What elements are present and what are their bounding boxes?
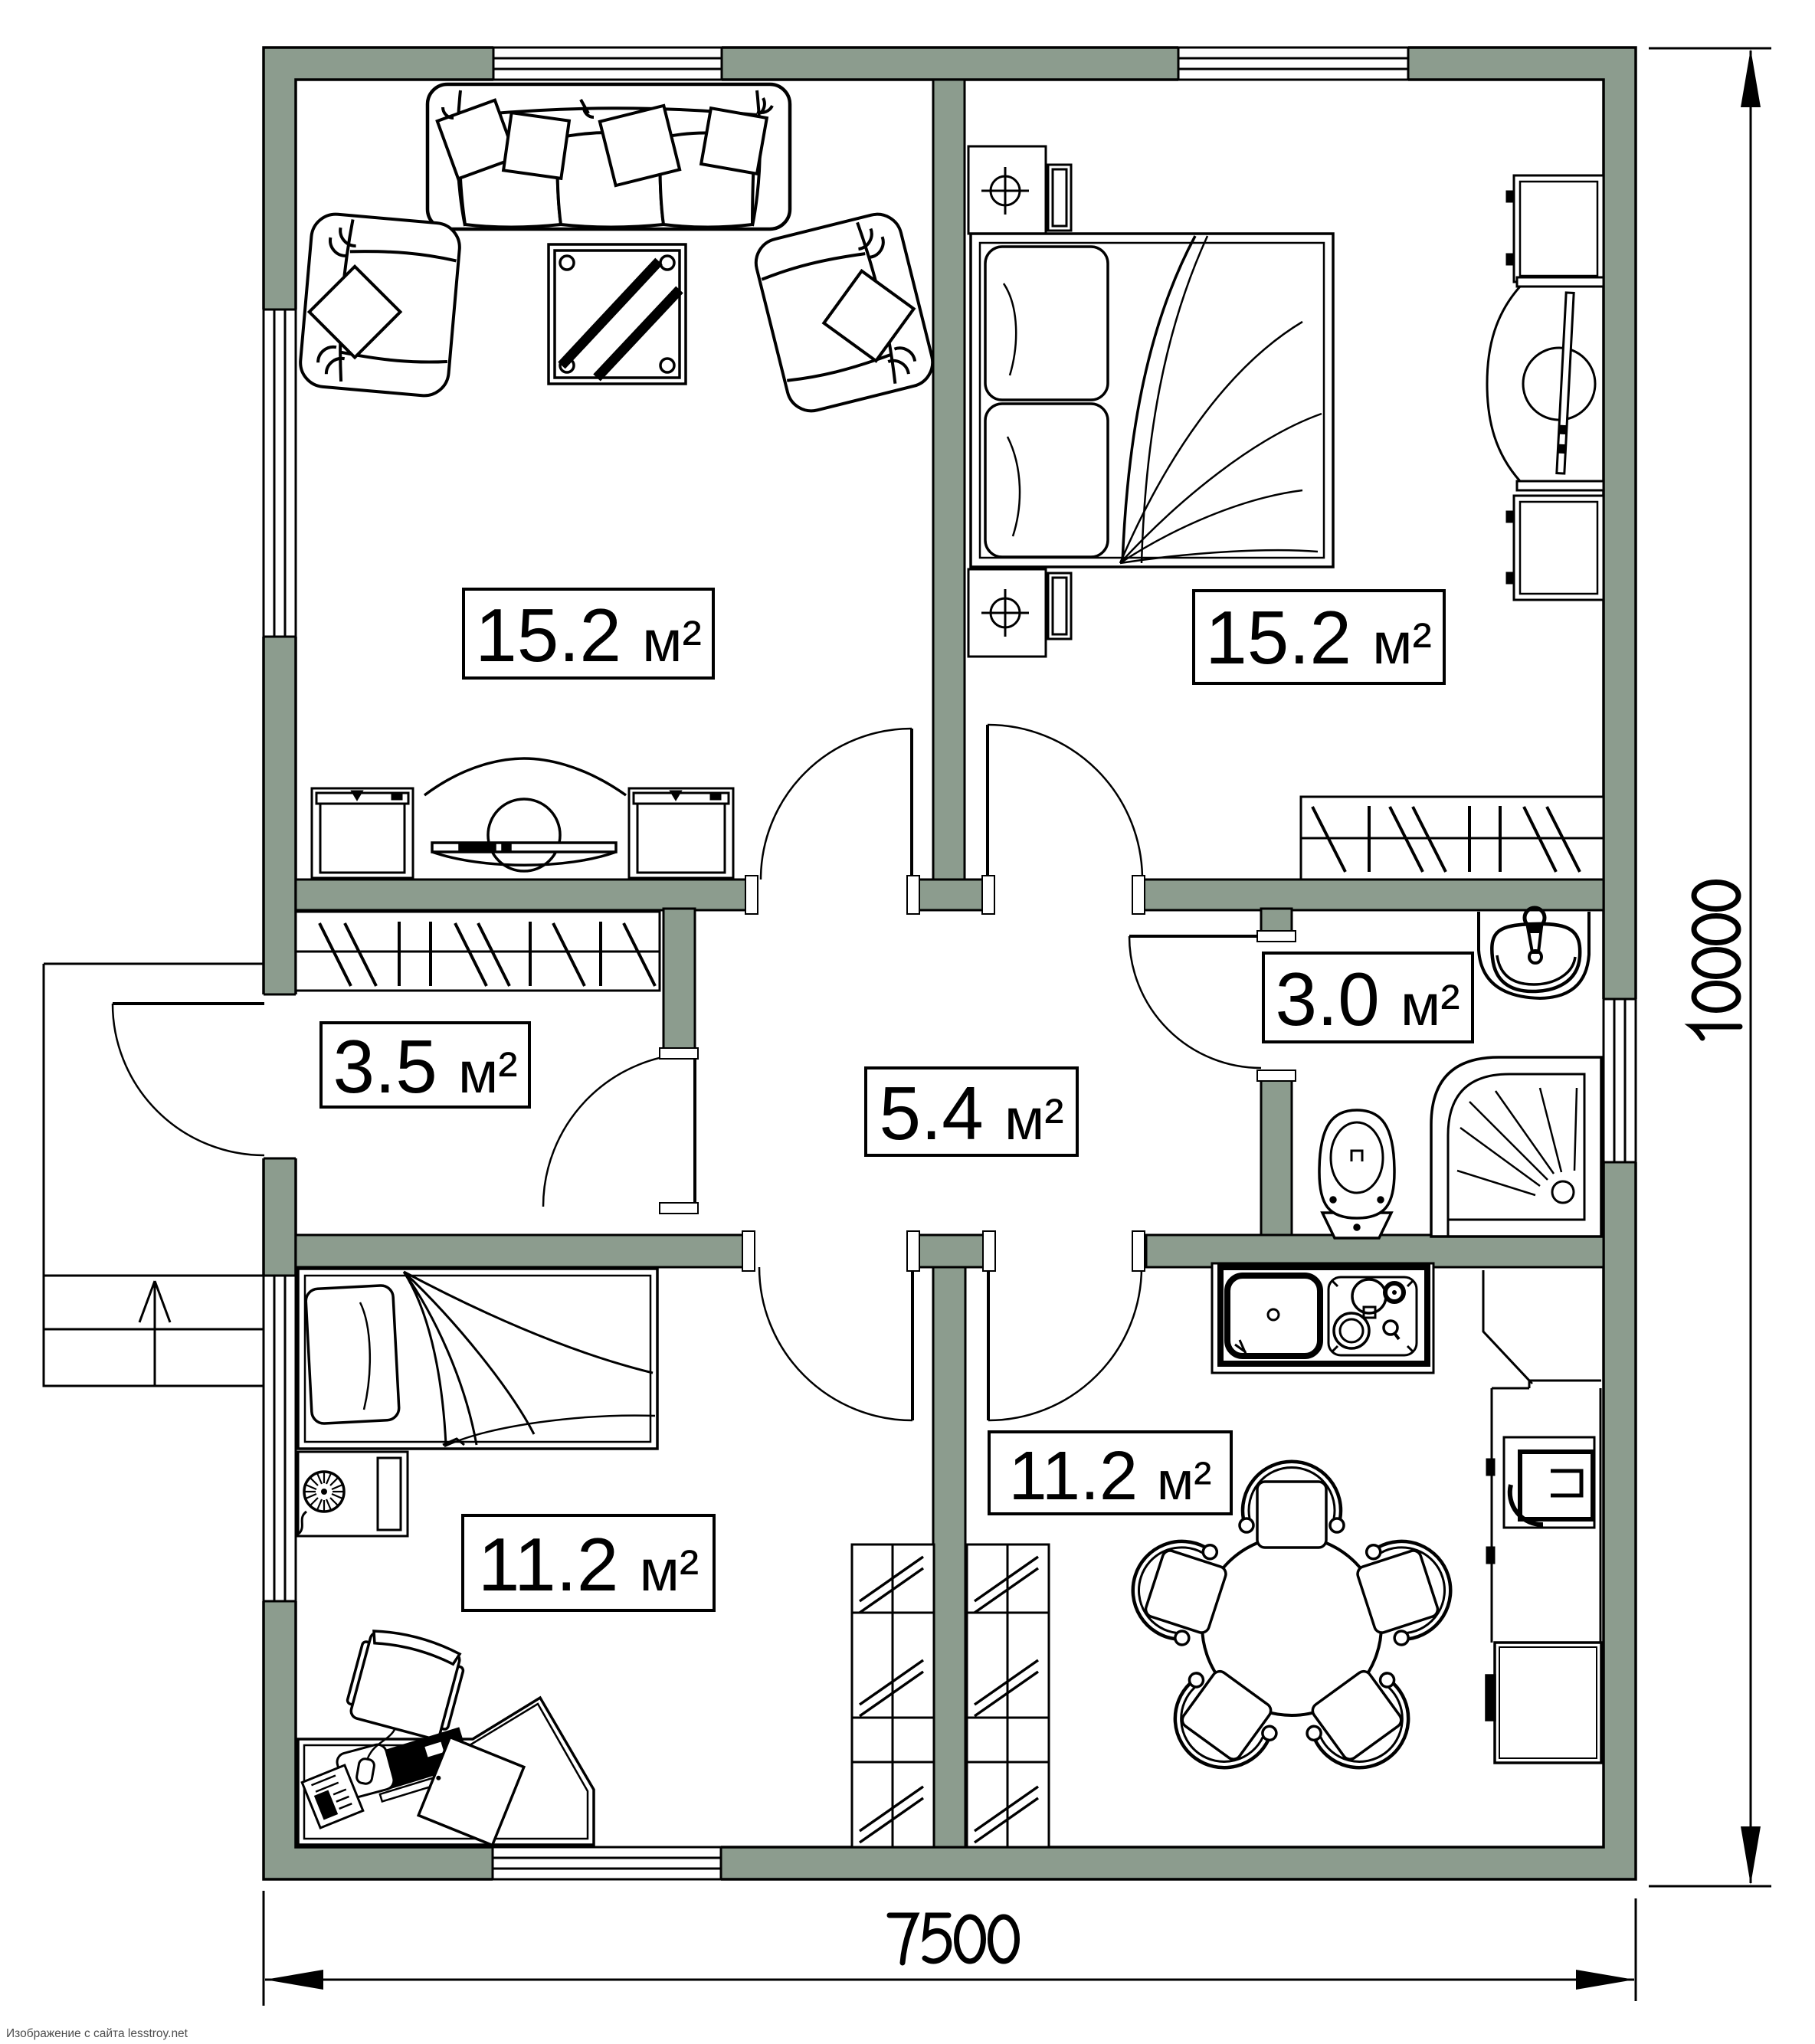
svg-text:Изображение с сайта lesstroy.n: Изображение с сайта lesstroy.net <box>6 2027 188 2040</box>
